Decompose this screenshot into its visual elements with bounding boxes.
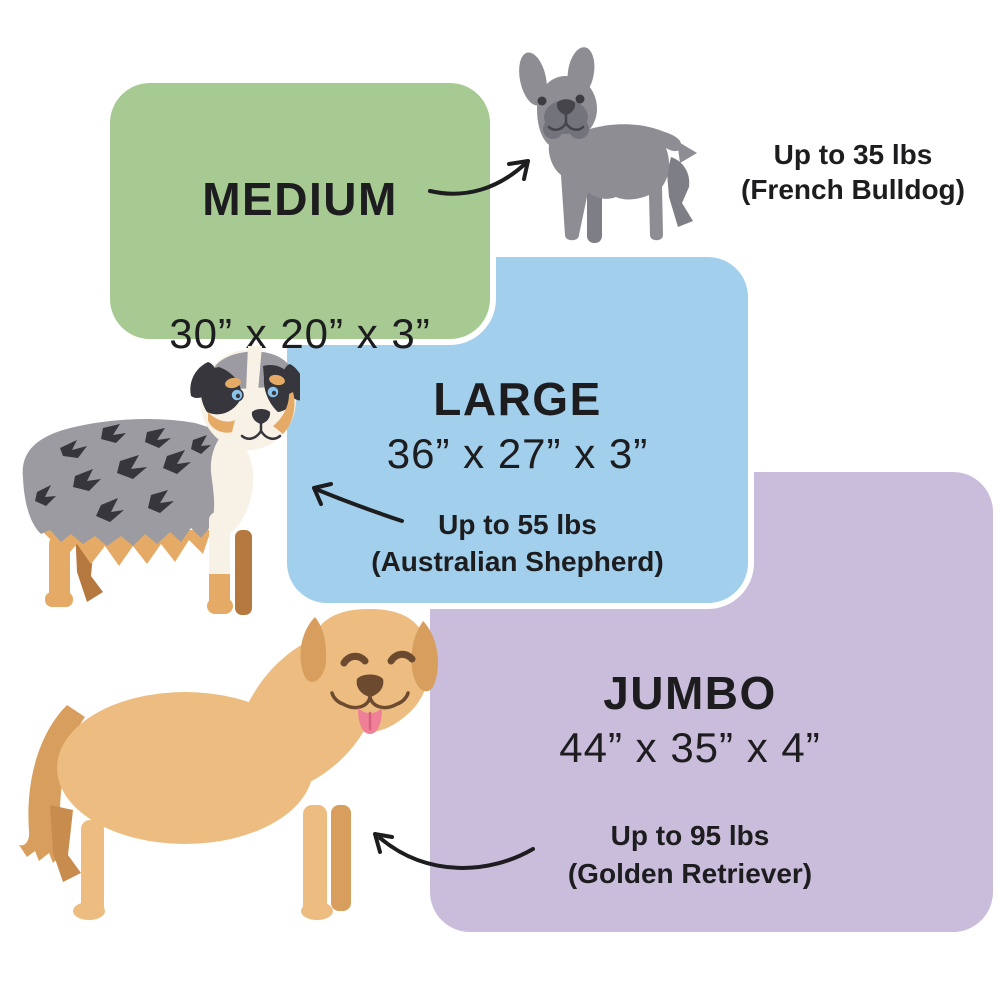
australian-shepherd-illustration <box>5 340 300 625</box>
size-box-medium: MEDIUM 30” x 20” x 3” <box>110 83 490 339</box>
size-dimensions-large: 36” x 27” x 3” <box>287 433 748 475</box>
weight-limit-large: Up to 55 lbs <box>287 511 748 539</box>
breed-example-jumbo: (Golden Retriever) <box>430 860 950 888</box>
french-bulldog-illustration <box>505 45 730 255</box>
medium-weight-annotation: Up to 35 lbs (French Bulldog) <box>697 137 1000 207</box>
size-name-medium: MEDIUM <box>110 176 490 222</box>
size-dimensions-jumbo: 44” x 35” x 4” <box>430 727 950 769</box>
size-chart-infographic: JUMBO 44” x 35” x 4” Up to 95 lbs (Golde… <box>0 0 1000 1000</box>
breed-example-medium: (French Bulldog) <box>697 172 1000 207</box>
weight-limit-jumbo: Up to 95 lbs <box>430 822 950 850</box>
golden-retriever-illustration <box>5 605 440 935</box>
weight-limit-medium: Up to 35 lbs <box>697 137 1000 172</box>
breed-example-large: (Australian Shepherd) <box>287 548 748 576</box>
size-name-large: LARGE <box>287 376 748 422</box>
size-name-jumbo: JUMBO <box>430 670 950 716</box>
